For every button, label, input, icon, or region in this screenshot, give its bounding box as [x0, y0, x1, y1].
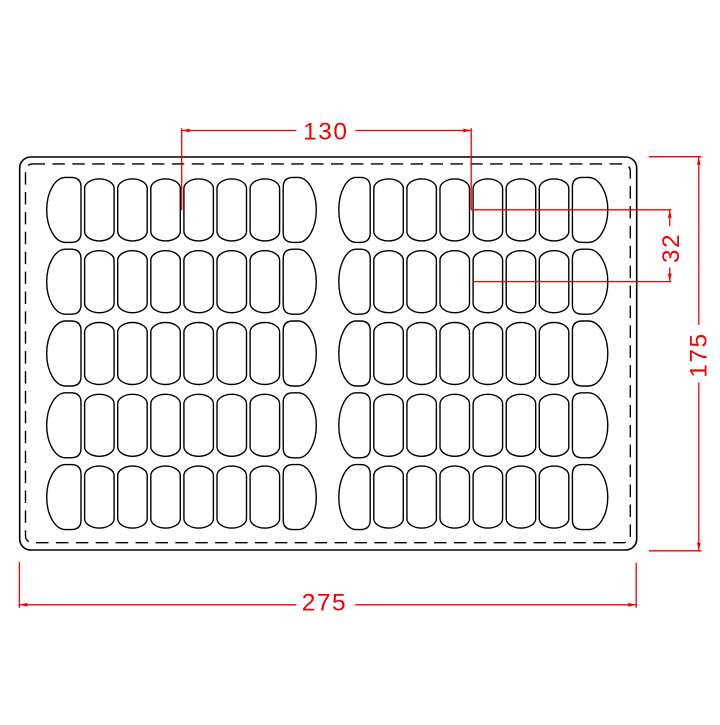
svg-text:175: 175 — [686, 332, 713, 377]
svg-text:32: 32 — [658, 233, 685, 263]
svg-text:275: 275 — [302, 590, 347, 617]
svg-text:130: 130 — [303, 118, 348, 145]
